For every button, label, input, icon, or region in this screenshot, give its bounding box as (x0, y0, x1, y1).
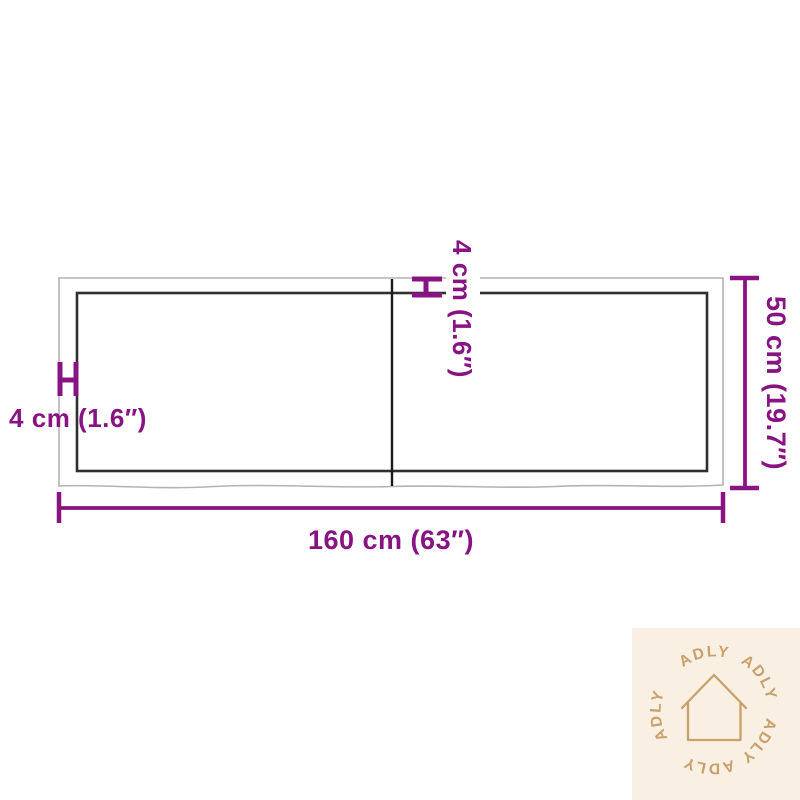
dimension-diagram-canvas: 160 cm (63″) 50 cm (19.7″) 4 cm (1.6″) 4… (0, 0, 800, 800)
thickness-top-label: 4 cm (1.6″) (447, 240, 477, 378)
height-dimension-label: 50 cm (19.7″) (761, 296, 791, 470)
product-dimension-diagram: 160 cm (63″) 50 cm (19.7″) 4 cm (1.6″) 4… (0, 0, 800, 800)
width-dimension-label: 160 cm (63″) (308, 525, 474, 555)
height-dimension: 50 cm (19.7″) (730, 278, 791, 488)
thickness-top-dimension: 4 cm (1.6″) (412, 240, 480, 378)
board-outline-group (59, 278, 723, 488)
width-dimension: 160 cm (63″) (59, 492, 723, 555)
brand-watermark: ADLY ADLY ADLY ADLY ADLY (632, 628, 800, 800)
thickness-left-label: 4 cm (1.6″) (9, 403, 147, 433)
